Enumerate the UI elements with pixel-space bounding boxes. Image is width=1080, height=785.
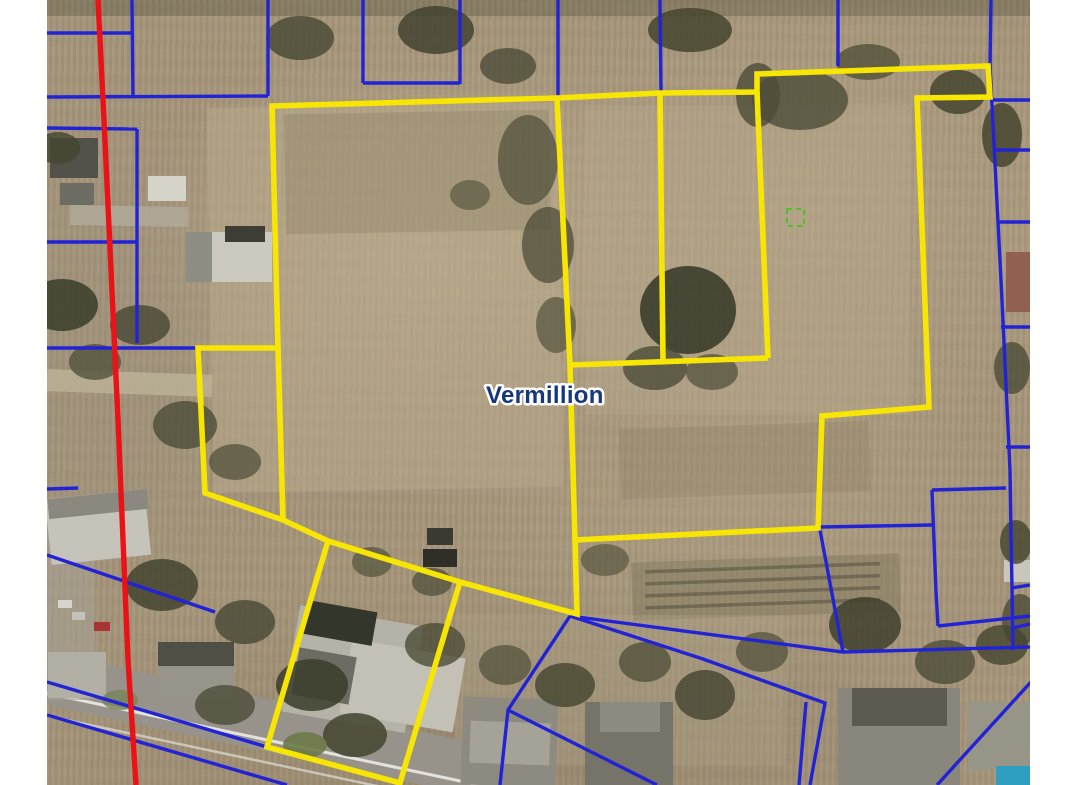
house-roof bbox=[852, 688, 947, 726]
parcel-line bbox=[820, 525, 932, 527]
tree bbox=[829, 597, 901, 653]
tree bbox=[323, 713, 387, 757]
house-roof bbox=[600, 702, 660, 732]
tree bbox=[535, 663, 595, 707]
parcel-line bbox=[799, 702, 806, 785]
parcel-line bbox=[660, 0, 661, 92]
parcel-line bbox=[932, 490, 938, 626]
tree bbox=[153, 401, 217, 449]
parcel-line bbox=[932, 488, 1006, 490]
tree bbox=[976, 625, 1028, 665]
tree bbox=[215, 600, 275, 644]
page: Vermillion bbox=[0, 0, 1080, 785]
tree bbox=[640, 266, 736, 354]
building bbox=[186, 232, 212, 282]
parcel-line bbox=[47, 488, 78, 489]
parcel-line bbox=[47, 128, 137, 129]
building bbox=[225, 226, 265, 242]
overlay-svg: Vermillion bbox=[47, 0, 1030, 785]
building bbox=[60, 183, 94, 205]
tree bbox=[47, 279, 98, 331]
tree bbox=[480, 48, 536, 84]
parcel-line bbox=[990, 0, 991, 66]
place-label: Vermillion bbox=[486, 382, 604, 409]
field-patch bbox=[619, 421, 871, 500]
house-roof bbox=[158, 642, 234, 666]
tree-line bbox=[47, 0, 1030, 16]
parcel-line bbox=[1011, 585, 1030, 588]
car bbox=[72, 612, 85, 620]
tree bbox=[195, 685, 255, 725]
tree bbox=[982, 103, 1022, 167]
tree bbox=[675, 670, 735, 720]
tree bbox=[266, 16, 334, 60]
tree bbox=[994, 342, 1030, 394]
dirt-path bbox=[47, 369, 212, 397]
shed bbox=[427, 528, 453, 545]
tree bbox=[930, 70, 986, 114]
tree bbox=[450, 180, 490, 210]
tree bbox=[1000, 520, 1030, 564]
tree bbox=[581, 544, 629, 576]
tree bbox=[479, 645, 531, 685]
tree bbox=[110, 305, 170, 345]
tree bbox=[209, 444, 261, 480]
shed bbox=[423, 549, 457, 567]
tree bbox=[623, 346, 687, 390]
tree bbox=[498, 115, 558, 205]
selected-parcel-division[interactable] bbox=[660, 93, 663, 360]
tree bbox=[398, 6, 474, 54]
tree bbox=[915, 640, 975, 684]
tree bbox=[836, 44, 900, 80]
parcel-line bbox=[132, 0, 133, 97]
building bbox=[1006, 252, 1030, 312]
pool bbox=[996, 766, 1030, 785]
building bbox=[968, 702, 1030, 770]
building bbox=[148, 176, 186, 201]
house-roof bbox=[469, 721, 550, 766]
parcel-line bbox=[47, 96, 268, 97]
car bbox=[58, 600, 72, 608]
driveway bbox=[70, 205, 188, 227]
aerial-map[interactable]: Vermillion bbox=[47, 0, 1030, 785]
tree bbox=[619, 642, 671, 682]
car bbox=[94, 622, 110, 631]
